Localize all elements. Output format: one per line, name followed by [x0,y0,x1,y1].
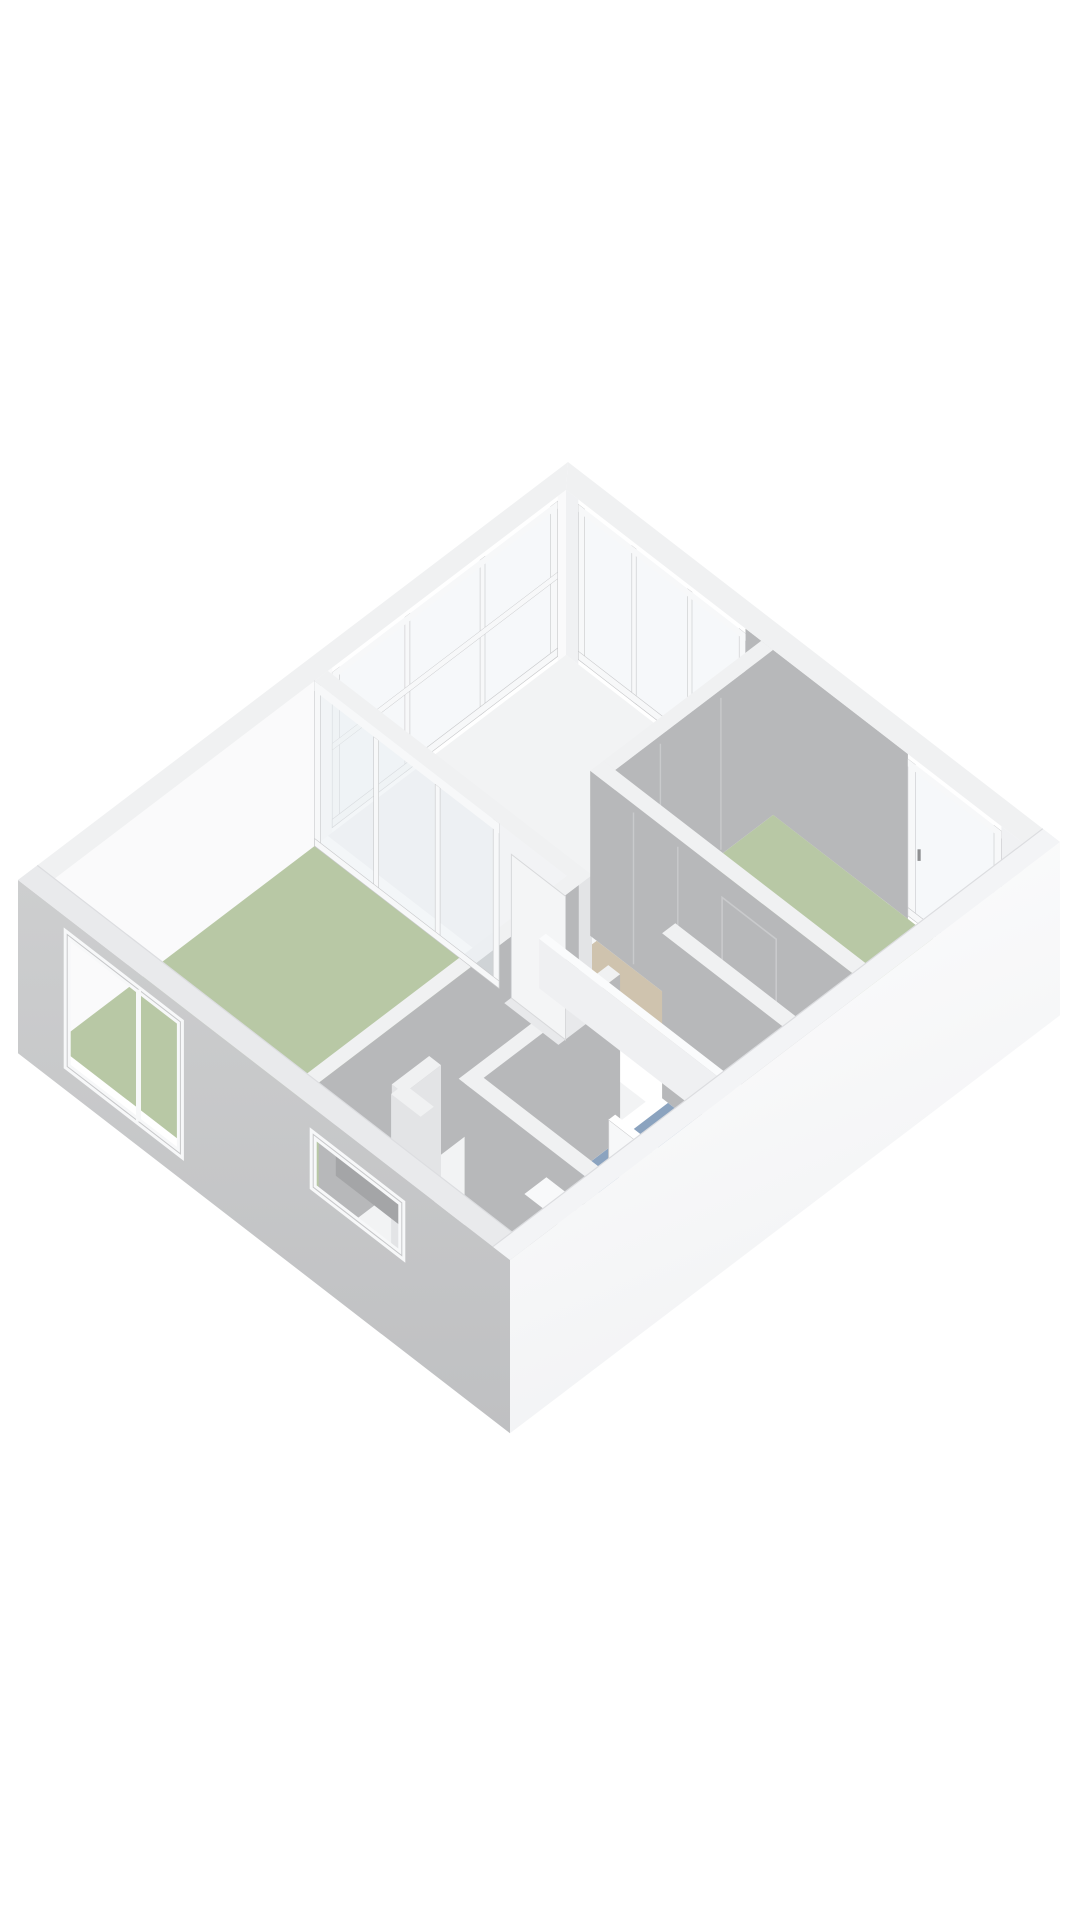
floorplan-3d-view [0,0,1080,1920]
floorplan-canvas[interactable] [0,0,1080,1920]
bedroom-left-glass-partition-mullion [374,737,379,893]
ne-french-window-frame-post [908,759,915,921]
bedroom-left-glass-partition-mullion [435,784,440,940]
ne-window-frame-post [578,504,584,664]
ne-window-mullion [632,546,636,705]
bedroom-left-glass-partition-post [315,681,321,851]
bedroom-left-glass-partition-post [493,819,499,989]
nw-wall-face [558,490,566,661]
ne-wall-face [566,490,578,665]
